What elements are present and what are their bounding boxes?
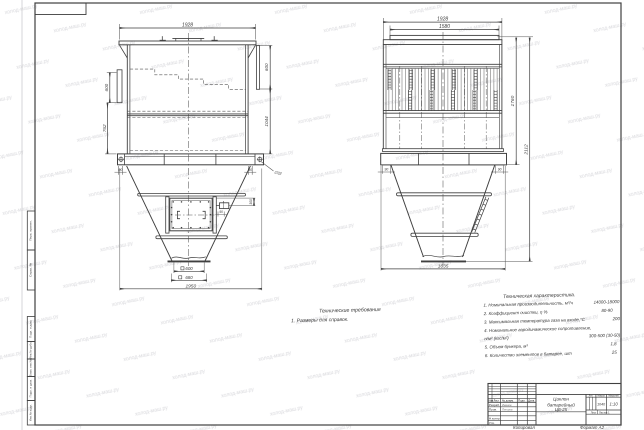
svg-text:Лит.: Лит. — [589, 395, 594, 398]
svg-text:1635: 1635 — [438, 263, 449, 269]
svg-text:2112: 2112 — [523, 144, 529, 156]
svg-text:300-500 (30-50): 300-500 (30-50) — [589, 333, 621, 339]
svg-text:Масса: Масса — [598, 395, 606, 398]
svg-text:Н.контр.: Н.контр. — [489, 417, 501, 421]
svg-text:1:10: 1:10 — [610, 402, 619, 407]
svg-text:ЦБ-25: ЦБ-25 — [555, 407, 568, 412]
svg-text:Лист: Лист — [591, 411, 597, 415]
svg-text:90: 90 — [385, 168, 389, 172]
svg-text:Формат А2: Формат А2 — [580, 425, 605, 430]
svg-text:Копировал: Копировал — [513, 425, 535, 430]
svg-text:680: 680 — [185, 275, 193, 280]
svg-text:Разраб.: Разраб. — [489, 403, 500, 407]
svg-text:762: 762 — [102, 124, 107, 132]
svg-text:Подп.: Подп. — [518, 398, 525, 402]
svg-text:н/м² (кгс/м²): н/м² (кгс/м²) — [484, 335, 509, 341]
svg-text:1580: 1580 — [439, 24, 450, 30]
svg-text:1928: 1928 — [437, 17, 448, 23]
svg-text:600: 600 — [104, 83, 109, 91]
svg-text:Взам. инв.№: Взам. инв.№ — [29, 359, 33, 376]
svg-text:Листов 1: Листов 1 — [599, 411, 610, 415]
svg-text:90: 90 — [119, 168, 123, 172]
svg-text:Пров.: Пров. — [489, 408, 497, 412]
svg-text:Инв.№ подл.: Инв.№ подл. — [29, 404, 33, 421]
svg-text:1,8: 1,8 — [610, 341, 617, 346]
svg-text:1040: 1040 — [597, 402, 605, 406]
svg-text:Лист: Лист — [494, 399, 500, 402]
svg-text:300: 300 — [249, 199, 253, 205]
svg-text:№ докум.: № докум. — [502, 399, 514, 402]
svg-text:1044: 1044 — [264, 116, 269, 127]
svg-text:90: 90 — [498, 168, 502, 172]
svg-text:90: 90 — [219, 210, 223, 214]
svg-text:Перв. примен.: Перв. примен. — [29, 220, 33, 241]
svg-text:Иванов: Иванов — [502, 403, 512, 407]
svg-text:Подп. и дата: Подп. и дата — [29, 379, 33, 397]
svg-text:600: 600 — [185, 266, 193, 271]
svg-text:Справ. №: Справ. № — [29, 262, 33, 277]
svg-text:Петров: Петров — [502, 408, 513, 412]
svg-text:600: 600 — [264, 63, 269, 71]
svg-text:80-90: 80-90 — [601, 308, 613, 313]
svg-text:14000-18000: 14000-18000 — [593, 299, 620, 305]
svg-text:200: 200 — [611, 316, 620, 321]
svg-text:Утв.: Утв. — [489, 421, 495, 425]
svg-text:Инв.№ дубл.: Инв.№ дубл. — [29, 341, 33, 358]
svg-text:1928: 1928 — [182, 22, 193, 28]
svg-text:1760: 1760 — [510, 95, 516, 106]
svg-text:25: 25 — [611, 350, 618, 355]
svg-text:Циклон: Циклон — [553, 396, 569, 401]
svg-text:1950: 1950 — [185, 283, 196, 289]
svg-text:Масштаб: Масштаб — [608, 395, 619, 398]
svg-text:Подп. и дата: Подп. и дата — [29, 320, 33, 338]
svg-text:Дата: Дата — [528, 398, 534, 402]
